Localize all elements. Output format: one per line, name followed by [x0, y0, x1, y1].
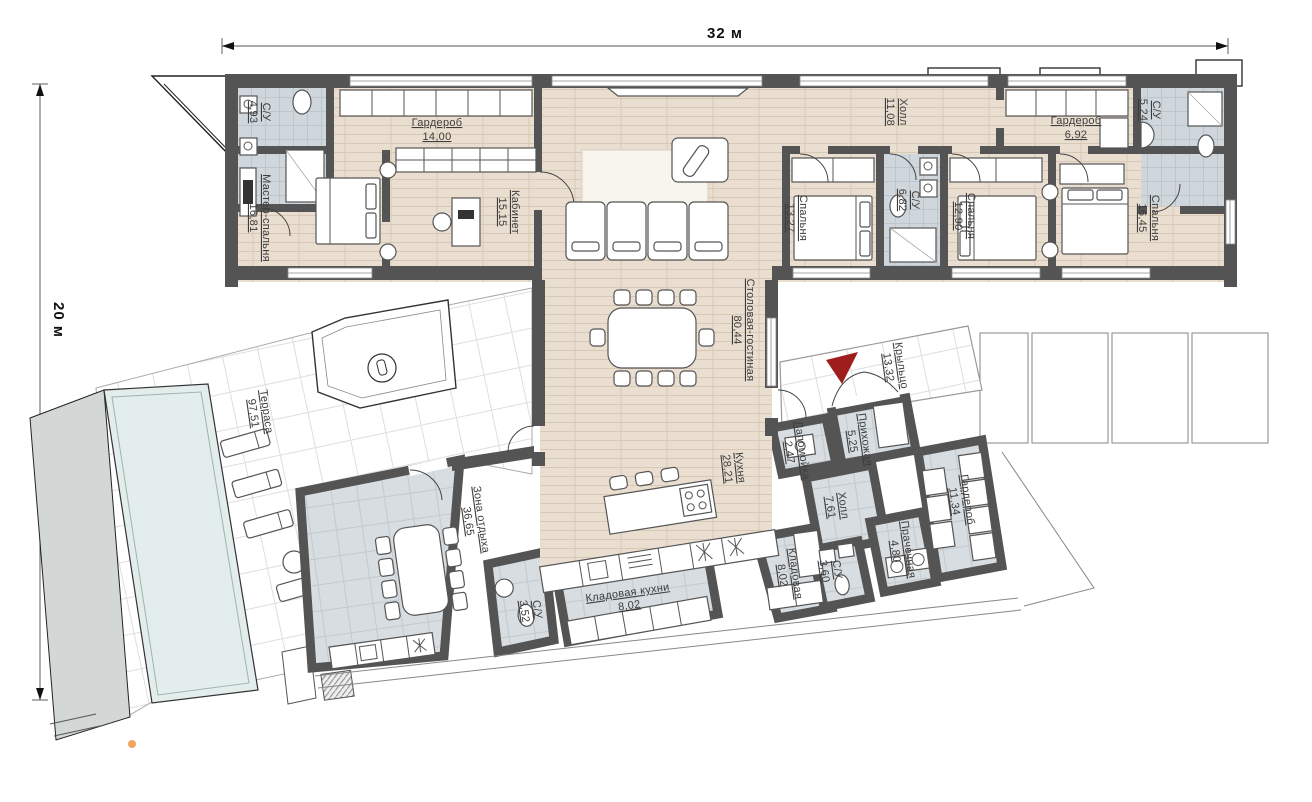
window: [1008, 76, 1126, 86]
window: [800, 76, 988, 86]
floor-plan-screenshot: 32 м 20 м: [0, 0, 1312, 802]
tv-console-icon: [608, 88, 748, 96]
jacuzzi-icon: [312, 300, 456, 408]
window: [288, 268, 372, 278]
window: [793, 268, 870, 278]
room-label-kitchen: Кухня28,21: [719, 452, 747, 485]
room-label-wc682: С/У6,82: [896, 189, 921, 212]
dimension-width-label: 32 м: [707, 25, 743, 42]
entry-closet: [873, 402, 909, 448]
dimension-top: 32 м: [222, 25, 1228, 54]
window: [1062, 268, 1150, 278]
room-label-wc493: С/У4,93: [247, 101, 272, 124]
room-label-hall1108: Холл11,08: [884, 98, 909, 126]
room-label-hall761: Холл7,61: [822, 491, 851, 521]
floor-plan-svg: 32 м 20 м: [0, 0, 1312, 802]
room-label-lounge: Зона отдыха36,65: [457, 485, 491, 556]
dimension-height-label: 20 м: [50, 302, 67, 338]
marker-dot: [128, 740, 136, 748]
parking-pads: [980, 333, 1268, 443]
window: [350, 76, 532, 86]
window: [952, 268, 1040, 278]
window: [552, 76, 762, 86]
room-label-wc524: С/У5,24: [1137, 99, 1162, 122]
window: [1226, 200, 1235, 244]
window: [767, 318, 776, 386]
